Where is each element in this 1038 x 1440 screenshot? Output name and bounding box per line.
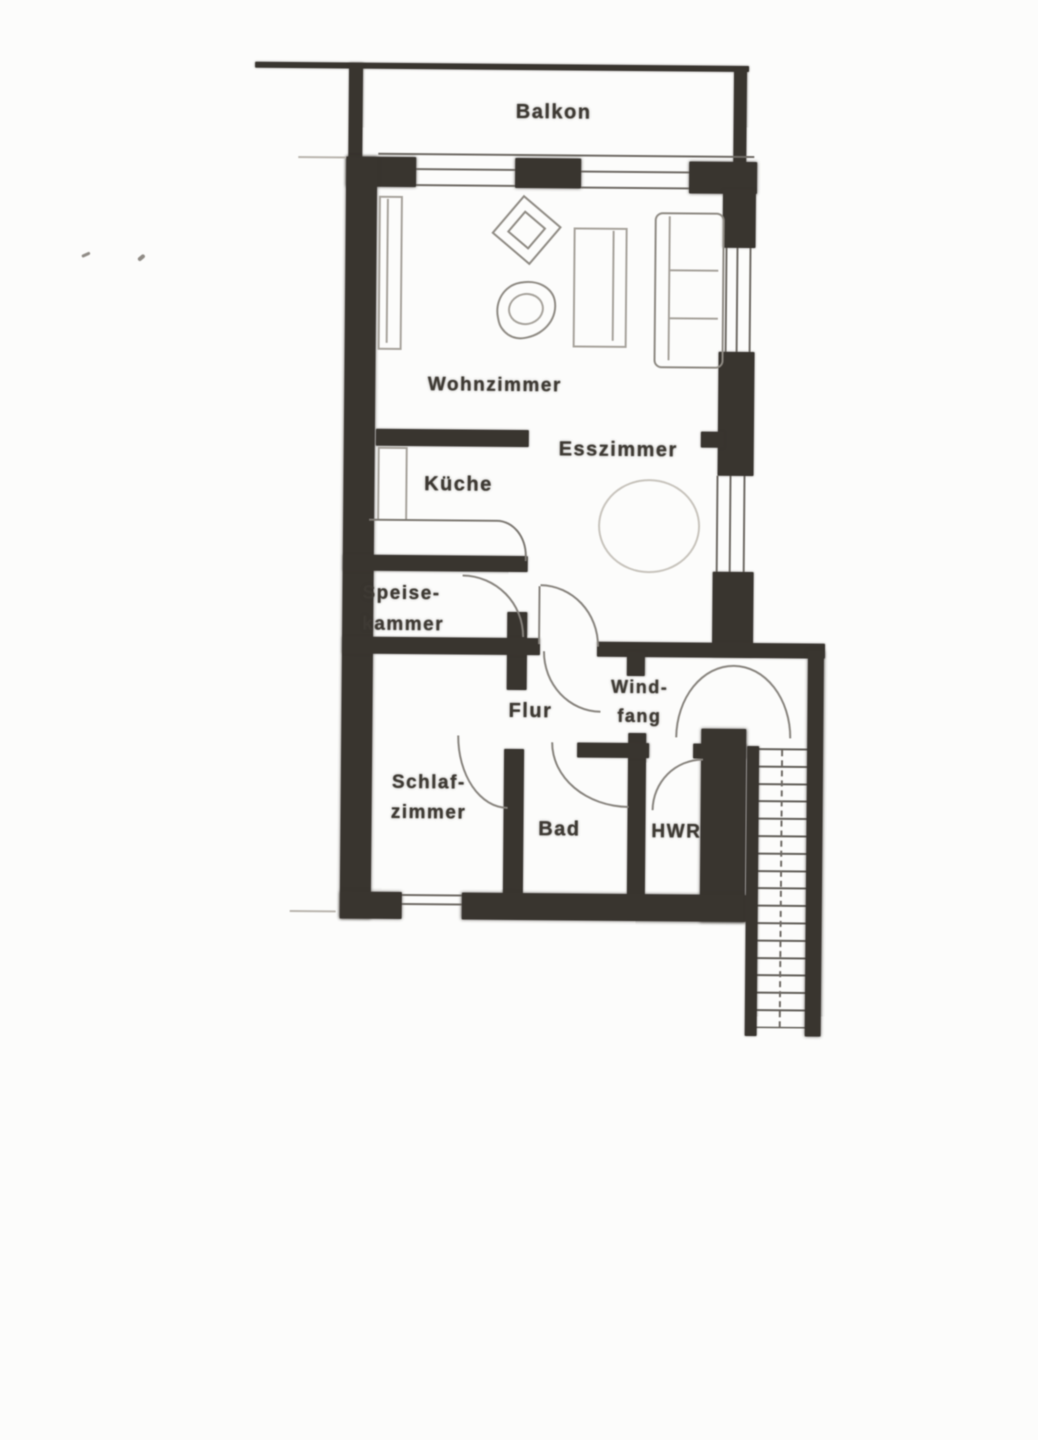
window-right-2-line-c xyxy=(743,476,746,572)
wall-outer-right-pier-1 xyxy=(723,190,757,248)
room-label-esszimmer: Esszimmer xyxy=(536,436,701,464)
window-right-2-line-b xyxy=(729,476,732,572)
window-front-1-line-b xyxy=(416,184,515,187)
room-label-speisekammer-line1: Speise- xyxy=(362,583,440,605)
furniture-wardrobe xyxy=(378,196,403,350)
wall-balcony-right xyxy=(733,70,747,164)
wall-bottom-pier-2 xyxy=(462,893,746,922)
window-right-2-line-a xyxy=(716,476,719,572)
window-front-1-line-a xyxy=(416,168,515,171)
room-label-windfang-line2: fang xyxy=(617,706,661,726)
furniture-sofa-cushion-line-2 xyxy=(670,317,718,319)
wall-wohnzimmer-kueche xyxy=(376,429,529,447)
window-right-1-line-b xyxy=(736,248,739,352)
window-front-2-line-a xyxy=(581,171,689,174)
door-arc-bad xyxy=(551,742,630,808)
wall-outer-right-pier-2 xyxy=(718,352,755,476)
room-label-speisekammer: Speise- kammer xyxy=(362,578,468,641)
wall-bottom-pier-1 xyxy=(340,891,402,919)
furniture-kitchen-counter xyxy=(369,519,527,561)
window-bottom-line-a xyxy=(402,894,462,897)
window-sill-line xyxy=(378,153,754,158)
scan-speck-1 xyxy=(81,251,90,257)
furniture-sofa xyxy=(653,212,724,369)
wall-top-boundary-line xyxy=(255,62,749,72)
door-arc-hwr xyxy=(652,758,703,810)
door-arc-esszimmer xyxy=(540,584,600,647)
extension-line-bottom-left xyxy=(290,910,336,912)
wall-front-pier-2 xyxy=(515,158,581,189)
room-label-windfang: Wind- fang xyxy=(593,673,686,732)
room-label-schlafzimmer-line2: zimmer xyxy=(391,802,467,824)
room-label-wohnzimmer: Wohnzimmer xyxy=(402,372,587,399)
room-label-windfang-line1: Wind- xyxy=(611,677,669,697)
door-arc-speisekammer xyxy=(462,575,525,638)
room-label-hwr: HWR xyxy=(634,819,718,845)
furniture-sideboard xyxy=(573,227,628,347)
window-right-1-line-c xyxy=(749,248,752,352)
room-label-speisekammer-line2: kammer xyxy=(362,614,444,636)
scanned-floor-plan-page: Balkon Wohnzimmer Esszimmer Küche Speise… xyxy=(0,0,1038,1440)
wall-wohnzimmer-esszimmer-stub xyxy=(701,432,724,448)
room-label-balkon: Balkon xyxy=(494,99,614,127)
window-bottom-line-b xyxy=(402,903,462,906)
window-front-2-line-b xyxy=(581,187,689,190)
room-label-schlafzimmer: Schlaf- zimmer xyxy=(376,768,481,829)
wall-balcony-left xyxy=(348,62,363,160)
extension-line-top-left xyxy=(298,156,346,158)
scan-speck-2 xyxy=(137,254,146,262)
window-right-1-line-a xyxy=(725,248,728,352)
room-label-flur: Flur xyxy=(493,698,567,726)
room-label-schlafzimmer-line1: Schlaf- xyxy=(392,772,466,794)
furniture-sofa-cushion-line-1 xyxy=(670,269,718,271)
floor-plan: Balkon Wohnzimmer Esszimmer Küche Speise… xyxy=(0,0,1038,1440)
furniture-dining-table xyxy=(598,479,701,574)
door-arc-entrance xyxy=(675,664,792,738)
room-label-bad: Bad xyxy=(519,816,599,844)
wall-stair-outer-right xyxy=(805,651,824,1037)
room-label-kueche: Küche xyxy=(397,471,519,499)
